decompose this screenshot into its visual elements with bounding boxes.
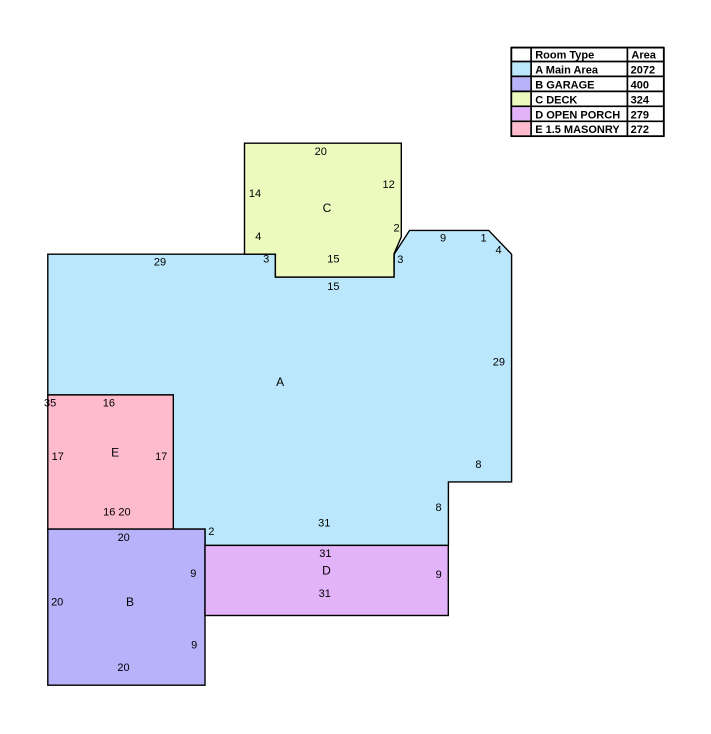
svg-text:E: E: [111, 446, 119, 460]
svg-text:Area: Area: [631, 50, 656, 62]
svg-text:D: D: [322, 564, 331, 578]
svg-text:20: 20: [118, 532, 130, 544]
svg-text:E 1.5 MASONRY: E 1.5 MASONRY: [535, 124, 620, 136]
svg-text:29: 29: [154, 257, 166, 269]
svg-text:16: 16: [103, 397, 115, 409]
svg-text:3: 3: [263, 254, 269, 266]
svg-text:35: 35: [44, 397, 56, 409]
svg-text:17: 17: [52, 451, 64, 463]
svg-text:2072: 2072: [631, 64, 655, 76]
svg-text:20: 20: [51, 597, 63, 609]
svg-text:C: C: [323, 201, 332, 215]
svg-text:1: 1: [481, 233, 487, 245]
svg-text:2: 2: [393, 222, 399, 234]
svg-text:Room Type: Room Type: [535, 50, 594, 62]
svg-text:9: 9: [190, 568, 196, 580]
svg-text:B: B: [126, 595, 134, 609]
svg-text:3: 3: [397, 254, 403, 266]
svg-text:15: 15: [327, 281, 339, 293]
svg-text:31: 31: [319, 548, 331, 560]
svg-text:400: 400: [631, 79, 649, 91]
svg-text:A: A: [276, 375, 284, 389]
svg-text:4: 4: [255, 231, 261, 243]
svg-text:9: 9: [191, 640, 197, 652]
svg-text:9: 9: [436, 569, 442, 581]
svg-text:15: 15: [327, 254, 339, 266]
svg-text:31: 31: [318, 518, 330, 530]
svg-text:8: 8: [436, 502, 442, 514]
svg-text:20: 20: [117, 662, 129, 674]
svg-text:C DECK: C DECK: [535, 94, 577, 106]
svg-text:8: 8: [475, 459, 481, 471]
svg-text:279: 279: [631, 109, 649, 121]
svg-text:2: 2: [208, 526, 214, 538]
svg-text:D OPEN PORCH: D OPEN PORCH: [535, 109, 620, 121]
svg-text:31: 31: [319, 588, 331, 600]
svg-text:17: 17: [155, 451, 167, 463]
svg-text:9: 9: [440, 232, 446, 244]
svg-text:16 20: 16 20: [103, 506, 131, 518]
svg-text:29: 29: [493, 357, 505, 369]
svg-text:14: 14: [249, 188, 261, 200]
svg-text:324: 324: [631, 94, 650, 106]
svg-text:272: 272: [631, 124, 649, 136]
svg-text:4: 4: [496, 245, 502, 257]
svg-text:12: 12: [382, 179, 394, 191]
svg-text:B GARAGE: B GARAGE: [535, 79, 594, 91]
svg-text:20: 20: [315, 146, 327, 158]
svg-text:A Main Area: A Main Area: [535, 64, 599, 76]
